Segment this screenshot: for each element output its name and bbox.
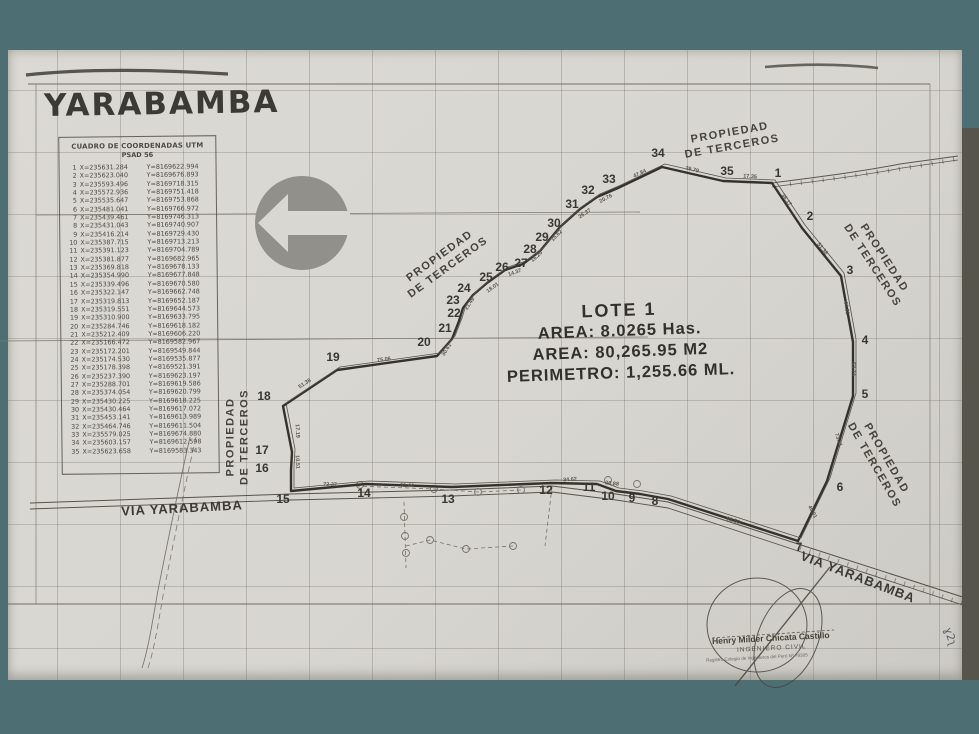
- table-cell: 21: [66, 331, 78, 339]
- utility-pole-icon: [605, 477, 612, 484]
- table-cell: 1: [65, 164, 77, 172]
- coordinate-table-header: CUADRO DE COORDENADAS UTM: [59, 141, 215, 151]
- table-cell: 8: [65, 222, 77, 230]
- table-cell: 2: [65, 172, 77, 180]
- table-cell: 5: [65, 197, 77, 205]
- lot-info-block: LOTE 1 AREA: 8.0265 Has. AREA: 80,265.95…: [454, 294, 787, 389]
- table-row: 35X=235623.658Y=8169583.343: [62, 446, 218, 456]
- road-bottom-line: [30, 486, 975, 601]
- coordinate-table-datum: PSAD 56: [59, 150, 215, 160]
- table-cell: 30: [67, 406, 79, 414]
- scan-smudge: [26, 70, 228, 75]
- table-cell: 7: [65, 214, 77, 222]
- table-cell: 12: [65, 255, 77, 263]
- table-cell: 10: [65, 239, 77, 247]
- table-cell: 27: [67, 381, 79, 389]
- north-arrow-icon: [255, 176, 350, 270]
- table-cell: 26: [67, 372, 79, 380]
- table-cell: 18: [66, 305, 78, 313]
- table-cell: 9: [65, 230, 77, 238]
- table-cell: 23: [66, 347, 78, 355]
- table-cell: 17: [66, 297, 78, 305]
- table-cell: 11: [65, 247, 77, 255]
- table-cell: 33: [67, 431, 79, 439]
- table-cell: X=235623.658: [82, 447, 146, 456]
- table-cell: 29: [67, 397, 79, 405]
- table-cell: 22: [66, 339, 78, 347]
- table-cell: 14: [66, 272, 78, 280]
- map-title: YARABAMBA: [44, 84, 280, 124]
- table-cell: 35: [67, 447, 79, 455]
- utility-lines: [356, 486, 552, 568]
- table-cell: 34: [67, 439, 79, 447]
- coordinate-table-rows: 1X=235631.284Y=8169622.9942X=235623.040Y…: [60, 162, 219, 456]
- table-cell: 24: [67, 356, 79, 364]
- scan-smudge: [765, 65, 878, 68]
- utility-pole-icon: [403, 550, 410, 557]
- table-cell: 6: [65, 205, 77, 213]
- table-cell: 32: [67, 422, 79, 430]
- table-cell: 28: [67, 389, 79, 397]
- table-cell: 20: [66, 322, 78, 330]
- road-bottom-line: [30, 492, 972, 608]
- utility-pole-icon: [401, 514, 408, 521]
- table-cell: 19: [66, 314, 78, 322]
- road-hatch: [800, 548, 970, 606]
- table-cell: Y=8169583.343: [149, 446, 201, 455]
- table-cell: 16: [66, 289, 78, 297]
- table-cell: 13: [66, 264, 78, 272]
- scanned-survey-photo: { "title": "YARABAMBA", "coordinate_tabl…: [0, 0, 979, 734]
- utility-pole-icon: [634, 481, 641, 488]
- table-cell: 31: [67, 414, 79, 422]
- table-cell: 25: [67, 364, 79, 372]
- road-hatch: [790, 159, 956, 184]
- coordinate-table: CUADRO DE COORDENADAS UTM PSAD 56 1X=235…: [58, 135, 220, 475]
- table-cell: 3: [65, 180, 77, 188]
- table-cell: 4: [65, 189, 77, 197]
- table-cell: 15: [66, 280, 78, 288]
